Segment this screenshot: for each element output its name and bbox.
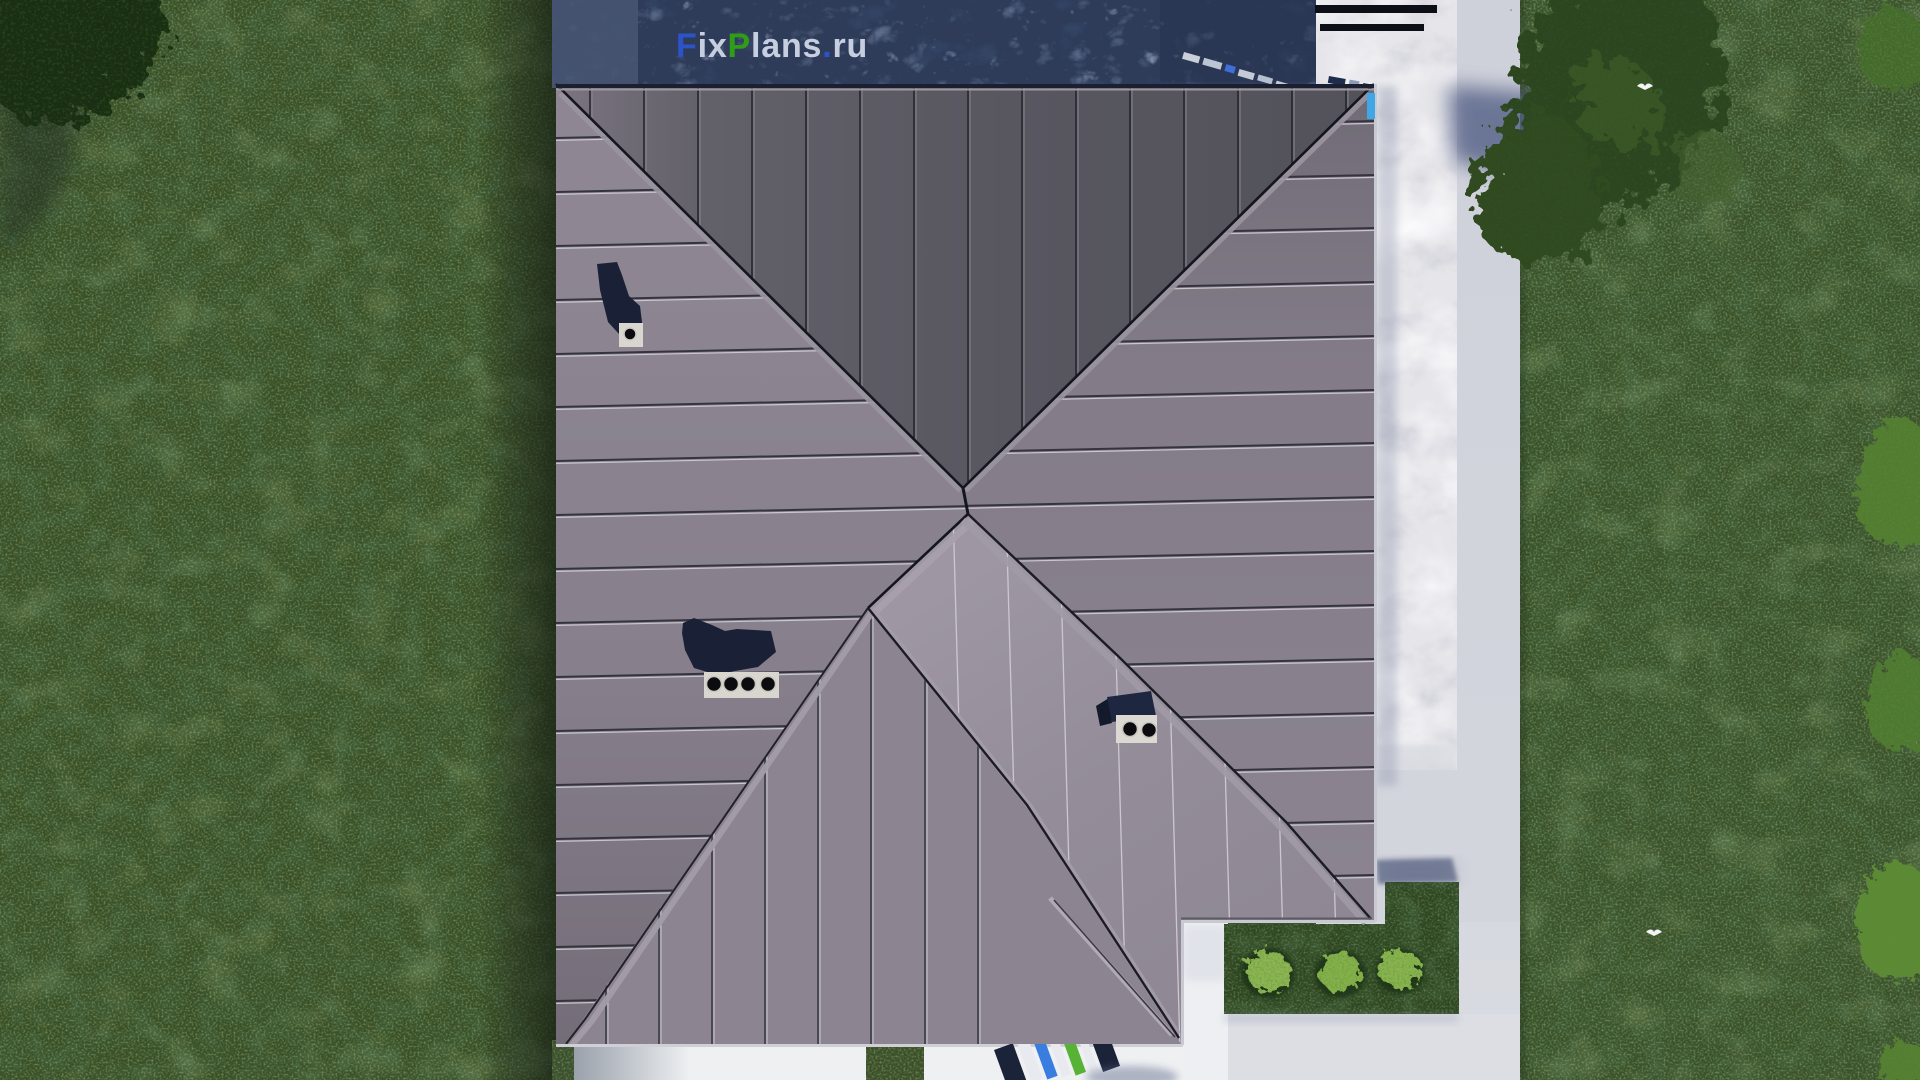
svg-text:FixPlans.ru: FixPlans.ru [676, 27, 868, 65]
